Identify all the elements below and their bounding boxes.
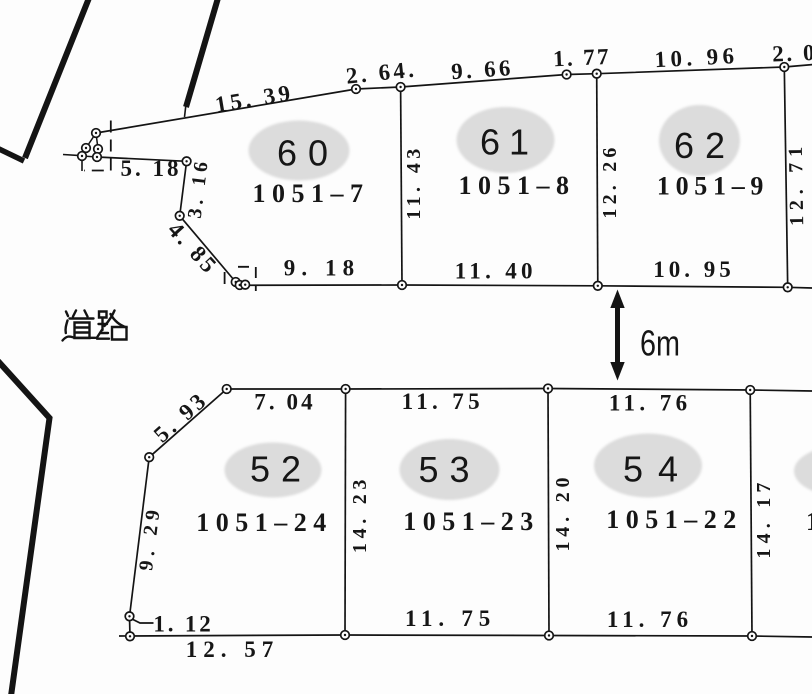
svg-text:2. 03: 2. 03: [772, 39, 812, 66]
svg-text:11. 43: 11. 43: [403, 144, 425, 219]
svg-text:60: 60: [277, 133, 339, 174]
svg-text:10. 95: 10. 95: [653, 257, 735, 282]
svg-text:7. 04: 7. 04: [254, 390, 316, 415]
svg-text:11. 75: 11. 75: [402, 389, 484, 414]
svg-text:14. 20: 14. 20: [552, 473, 574, 552]
svg-text:11. 76: 11. 76: [607, 607, 693, 632]
svg-text:14. 17: 14. 17: [753, 477, 775, 558]
svg-text:12. 57: 12. 57: [186, 637, 280, 662]
svg-text:11. 76: 11. 76: [609, 391, 692, 416]
svg-text:52: 52: [250, 449, 312, 490]
svg-text:61: 61: [480, 122, 538, 163]
svg-text:14. 23: 14. 23: [349, 475, 371, 553]
svg-text:1051–22: 1051–22: [606, 505, 743, 534]
svg-text:53: 53: [418, 449, 480, 490]
svg-text:10. 96: 10. 96: [654, 43, 739, 72]
svg-text:1051–9: 1051–9: [657, 172, 769, 201]
svg-text:11. 40: 11. 40: [455, 259, 537, 284]
svg-text:9. 18: 9. 18: [284, 256, 361, 281]
svg-text:1. 77: 1. 77: [552, 44, 611, 72]
svg-text:1. 12: 1. 12: [153, 612, 213, 637]
svg-text:1051–23: 1051–23: [403, 507, 540, 536]
svg-text:62: 62: [674, 125, 736, 166]
svg-text:1051–8: 1051–8: [459, 171, 576, 200]
svg-text:9. 66: 9. 66: [450, 55, 514, 84]
svg-text:5. 18: 5. 18: [121, 156, 182, 181]
svg-text:12. 26: 12. 26: [599, 143, 621, 218]
svg-text:11. 75: 11. 75: [405, 606, 496, 631]
svg-text:1051–7: 1051–7: [253, 179, 370, 208]
svg-text:12. 71: 12. 71: [785, 141, 808, 226]
svg-text:6m: 6m: [640, 322, 680, 363]
svg-text:1051–21: 1051–21: [806, 507, 812, 536]
svg-text:54: 54: [623, 449, 693, 490]
svg-text:1051–24: 1051–24: [196, 508, 333, 537]
